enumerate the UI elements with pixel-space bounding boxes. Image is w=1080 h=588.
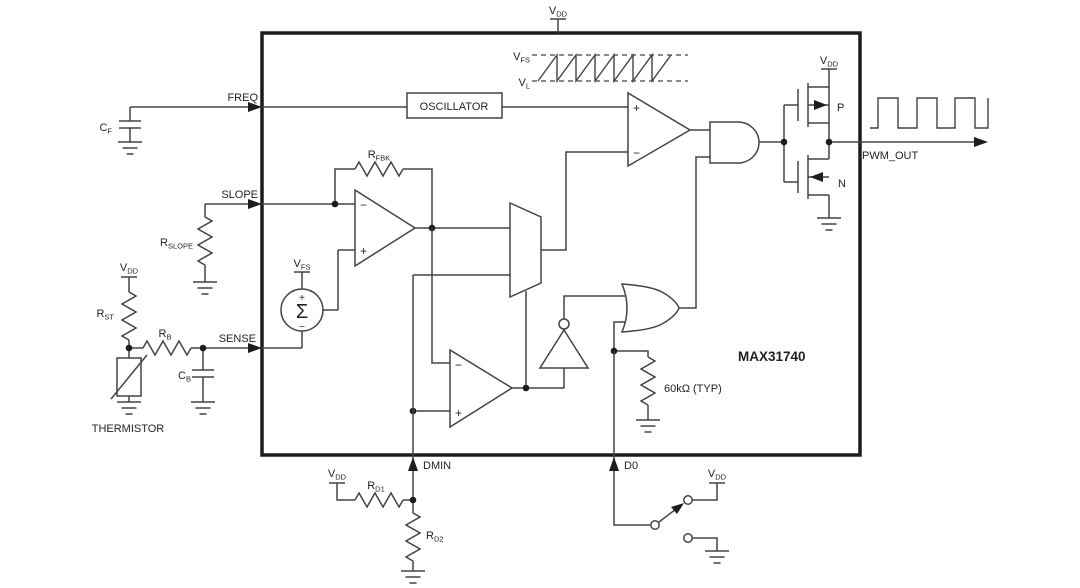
pwm-comparator: + − <box>628 93 710 166</box>
or-gate <box>614 157 710 351</box>
d0-pin-label: D0 <box>624 460 638 472</box>
freq-pin-label: FREQ <box>227 92 258 104</box>
thermistor-label: THERMISTOR <box>92 423 165 435</box>
cb-ground <box>191 402 215 414</box>
vfs-wave-label: VFS <box>513 51 530 65</box>
rb-resistor <box>143 341 191 355</box>
mux-body <box>510 203 541 297</box>
d0-pulldown: 60kΩ (TYP) <box>611 348 722 432</box>
rslope-resistor <box>198 217 212 265</box>
summer-plus-sign: + <box>299 293 305 304</box>
rb-label: RB <box>159 328 172 342</box>
dmin-pin-label: DMIN <box>423 460 451 472</box>
pulldown-ground <box>636 420 660 432</box>
rd1-label: RD1 <box>367 480 385 494</box>
rst-resistor <box>122 292 136 340</box>
nfet-label: N <box>838 178 846 190</box>
switch-vdd-terminal <box>684 496 692 504</box>
rslope-ground <box>193 282 217 294</box>
cb-capacitor <box>192 370 214 377</box>
chip-name-label: MAX31740 <box>738 349 806 364</box>
ramp-waveform: VFS VL <box>513 51 688 91</box>
pwm-comp-noninverting-sign: + <box>633 101 640 115</box>
error-amplifier: RFBK − + <box>323 149 510 310</box>
rfbk-label: RFBK <box>368 149 391 163</box>
cb-label: CB <box>178 370 191 384</box>
schematic-page: VDD FREQ CF SLOPE RSLOPE VDD RST RB SENS… <box>0 0 1080 588</box>
switch-gnd-terminal <box>684 534 692 542</box>
or-gate-body <box>622 284 679 332</box>
switch-common-terminal <box>651 521 659 529</box>
ic-boundary-box <box>262 33 860 455</box>
max31740-application-schematic: VDD FREQ CF SLOPE RSLOPE VDD RST RB SENS… <box>0 0 1080 588</box>
rd2-resistor <box>406 513 420 561</box>
oscillator-block: OSCILLATOR <box>407 93 628 118</box>
nfet-arrow <box>810 172 823 182</box>
summer-sigma: Σ <box>296 301 308 323</box>
switch-arm-arrow <box>671 503 684 514</box>
vl-wave-label: VL <box>518 77 530 91</box>
vdd-label-switch: VDD <box>708 468 727 482</box>
rd1-resistor <box>355 493 403 507</box>
sawtooth-wave <box>538 55 671 81</box>
vfs-summer: Σ + − VFS <box>281 258 323 348</box>
pwm-comp-inverting-sign: − <box>633 146 640 160</box>
sense-pin-label: SENSE <box>219 333 256 345</box>
vdd-label-thermistor: VDD <box>120 262 139 276</box>
slope-pin-label: SLOPE <box>221 189 258 201</box>
pfet-arrow <box>814 100 827 110</box>
oscillator-label: OSCILLATOR <box>420 101 489 113</box>
inverter-triangle <box>540 330 588 368</box>
switch-ground <box>705 551 729 563</box>
thermistor-ground <box>117 402 141 414</box>
vdd-label-driver: VDD <box>820 55 839 69</box>
inverter <box>540 296 626 388</box>
rd2-ground <box>401 571 425 583</box>
and-gate-body <box>710 122 759 163</box>
rfbk-resistor <box>355 162 403 176</box>
cf-capacitor <box>119 121 141 128</box>
pwm-square-wave <box>870 98 988 128</box>
pulldown-resistor <box>641 357 655 405</box>
pfet-label: P <box>837 102 844 114</box>
pulldown-value-label: 60kΩ (TYP) <box>664 383 722 395</box>
dmin-comp-noninverting-sign: + <box>455 406 462 420</box>
slope-pin-network: SLOPE RSLOPE <box>160 189 355 294</box>
sense-pin-network: VDD RST RB SENSE CB THERMISTOR <box>92 262 302 435</box>
nfet-ground <box>817 218 841 230</box>
and-gate <box>710 122 784 163</box>
dmin-comp-inverting-sign: − <box>455 358 462 372</box>
vdd-label-top: VDD <box>549 5 568 19</box>
cf-label: CF <box>99 122 112 136</box>
inverter-bubble <box>559 319 569 329</box>
d0-pin-arrow <box>609 457 619 471</box>
output-driver: P VDD N PWM_OUT <box>781 55 988 230</box>
error-amp-inverting-sign: − <box>360 198 367 212</box>
vdd-tap-top: VDD <box>549 5 568 33</box>
freq-pin-network: FREQ CF <box>99 92 407 154</box>
pwm-out-arrow <box>974 137 988 147</box>
cf-ground <box>118 142 142 154</box>
error-amp-noninverting-sign: + <box>360 244 367 258</box>
vfs-source-label: VFS <box>294 258 311 272</box>
rst-label: RST <box>96 308 114 322</box>
rd2-label: RD2 <box>426 530 444 544</box>
pwm-out-label: PWM_OUT <box>862 150 919 162</box>
duty-mux <box>413 152 628 388</box>
vdd-label-rd1: VDD <box>328 468 347 482</box>
dmin-pin-arrow <box>408 457 418 471</box>
rslope-label: RSLOPE <box>160 237 193 251</box>
